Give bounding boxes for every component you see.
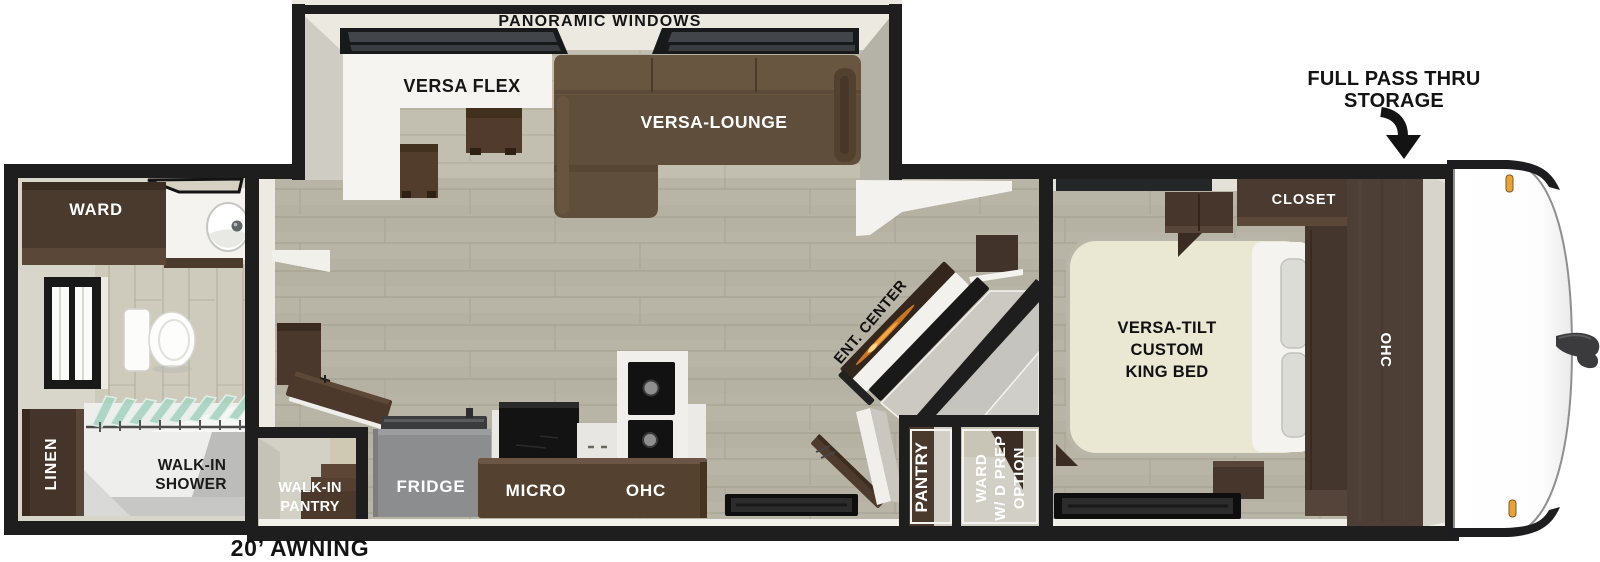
svg-text:OHC: OHC — [626, 481, 666, 500]
svg-text:VERSA-LOUNGE: VERSA-LOUNGE — [641, 112, 788, 132]
svg-text:STORAGE: STORAGE — [1344, 90, 1444, 112]
svg-text:KING BED: KING BED — [1125, 363, 1208, 381]
svg-text:FRIDGE: FRIDGE — [396, 477, 465, 496]
svg-text:SHOWER: SHOWER — [155, 476, 227, 493]
svg-text:FULL PASS THRU: FULL PASS THRU — [1307, 68, 1480, 90]
svg-text:OPTION: OPTION — [1011, 447, 1028, 509]
svg-text:OHC: OHC — [1377, 332, 1394, 367]
svg-text:PANTRY: PANTRY — [280, 499, 339, 515]
svg-text:CLOSET: CLOSET — [1272, 192, 1337, 208]
svg-text:WALK-IN: WALK-IN — [278, 480, 341, 496]
svg-text:CUSTOM: CUSTOM — [1131, 341, 1204, 359]
svg-text:LINEN: LINEN — [43, 438, 60, 491]
svg-text:W/ D PREP: W/ D PREP — [992, 435, 1009, 521]
svg-text:WALK-IN: WALK-IN — [158, 457, 226, 474]
svg-text:VERSA-TILT: VERSA-TILT — [1118, 319, 1217, 337]
svg-text:MICRO: MICRO — [506, 481, 567, 500]
svg-text:PANORAMIC WINDOWS: PANORAMIC WINDOWS — [498, 13, 701, 30]
svg-text:VERSA FLEX: VERSA FLEX — [403, 76, 520, 96]
svg-text:PANTRY: PANTRY — [912, 441, 931, 512]
svg-text:WARD: WARD — [69, 201, 123, 219]
svg-text:20’ AWNING: 20’ AWNING — [231, 535, 370, 557]
svg-text:WARD: WARD — [973, 453, 990, 502]
